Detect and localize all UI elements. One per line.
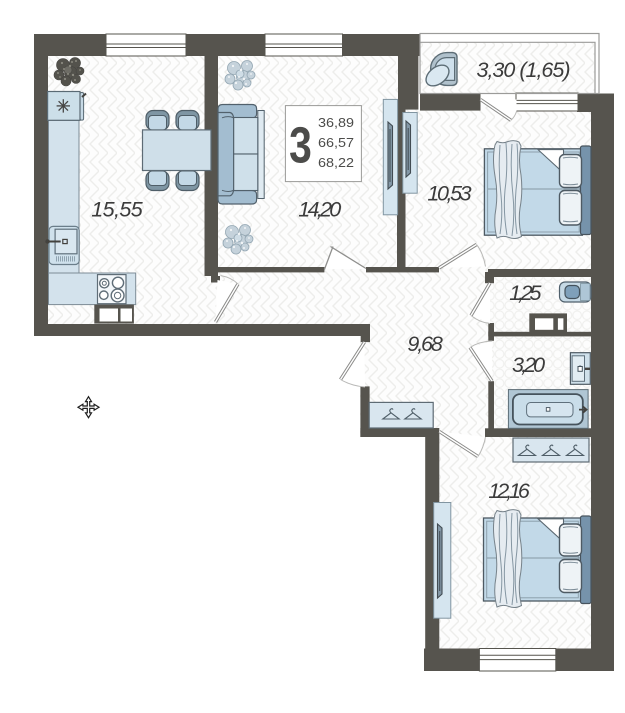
svg-text:68,22: 68,22 xyxy=(318,155,354,170)
svg-text:9,68: 9,68 xyxy=(407,332,442,356)
svg-text:66,57: 66,57 xyxy=(318,135,354,150)
svg-text:10,53: 10,53 xyxy=(427,182,471,206)
svg-text:3,30 (1,65): 3,30 (1,65) xyxy=(477,58,571,82)
svg-text:3: 3 xyxy=(289,116,312,173)
svg-text:3,20: 3,20 xyxy=(512,353,545,377)
svg-text:14,20: 14,20 xyxy=(298,198,341,222)
svg-text:36,89: 36,89 xyxy=(318,115,354,130)
svg-text:1,25: 1,25 xyxy=(509,281,542,305)
svg-text:12,16: 12,16 xyxy=(488,479,529,503)
svg-text:15,55: 15,55 xyxy=(91,198,144,222)
